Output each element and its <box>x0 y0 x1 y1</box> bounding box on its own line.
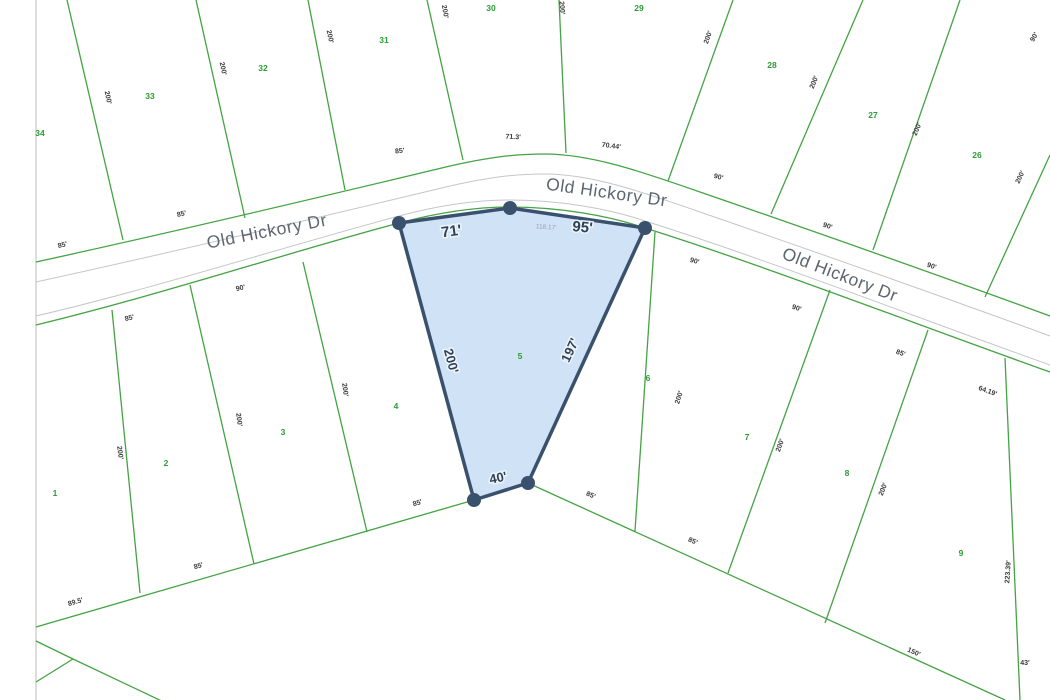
lot-number-label: 1 <box>53 488 58 498</box>
dimension-label: 71' <box>440 222 462 242</box>
lot-boundary <box>303 262 367 532</box>
dimension-label: 90' <box>235 284 246 293</box>
dimension-label: 200' <box>325 29 335 44</box>
dimension-label: 200' <box>703 30 714 45</box>
lot-number-label: 31 <box>379 35 389 45</box>
dimension-label: 118.17' <box>536 223 557 231</box>
dimension-label: 200' <box>775 438 786 453</box>
lot-boundary <box>1005 358 1020 700</box>
dimension-label: 85' <box>895 349 907 359</box>
dimension-label: 70.44' <box>601 142 621 151</box>
plat-map: Old Hickory Dr Old Hickory Dr Old Hickor… <box>0 0 1050 700</box>
dimension-label: 89.5' <box>67 597 84 608</box>
lot-boundary <box>67 0 123 240</box>
parcel-vertex-handle[interactable] <box>638 221 652 235</box>
dimension-label: 200' <box>912 122 924 137</box>
parcel-vertex-handle[interactable] <box>521 476 535 490</box>
dimension-label: 43' <box>1020 660 1030 667</box>
lot-rear-boundary <box>528 483 1005 700</box>
lot-number-label: 27 <box>868 110 878 120</box>
lot-number-label: 9 <box>959 548 964 558</box>
dimension-label: 64.19' <box>977 385 998 398</box>
lot-number-label: 32 <box>258 63 268 73</box>
parcel-vertex-handle[interactable] <box>467 493 481 507</box>
road-name-label: Old Hickory Dr <box>780 243 901 305</box>
lot-boundary <box>308 0 345 190</box>
dimension-label: 200' <box>674 390 685 405</box>
dimension-label: 90' <box>689 257 700 266</box>
dimension-label: 85' <box>193 562 204 571</box>
lot-number-label: 6 <box>646 373 651 383</box>
dimension-label: 85' <box>395 147 405 155</box>
dimension-label: 200' <box>557 1 565 15</box>
dimension-label: 200' <box>809 75 821 90</box>
dimension-label: 85' <box>687 537 699 547</box>
lot-boundary <box>427 0 463 160</box>
lot-number-label: 5 <box>518 351 523 361</box>
dimension-label: 200' <box>340 383 349 398</box>
dimension-label: 200' <box>115 446 124 461</box>
dimension-label: 90' <box>822 222 833 232</box>
lot-number-label: 2 <box>164 458 169 468</box>
lot-number-label: 7 <box>745 432 750 442</box>
dimension-label: 200' <box>878 482 890 497</box>
dimension-label: 223.39' <box>1004 560 1013 584</box>
lot-number-label: 29 <box>634 3 644 13</box>
dimension-label: 85' <box>57 241 68 250</box>
lot-number-label: 26 <box>972 150 982 160</box>
parcel-vertex-handle[interactable] <box>392 216 406 230</box>
dimension-label: 95' <box>572 218 594 237</box>
road-name-label: Old Hickory Dr <box>545 174 669 211</box>
lot-number-label: 28 <box>767 60 777 70</box>
dimension-label: 85' <box>585 491 597 501</box>
lot-number-label: 4 <box>394 401 399 411</box>
dimension-label: 200' <box>234 413 243 428</box>
lot-boundary <box>559 0 566 153</box>
lot-number-label: 30 <box>486 3 496 13</box>
dimension-label: 90' <box>713 173 724 182</box>
dimension-label: 71.3' <box>505 134 521 142</box>
lot-boundary <box>668 0 733 181</box>
lot-boundary <box>825 330 928 623</box>
lot-boundary <box>196 0 245 218</box>
dimension-label: 200' <box>103 90 113 105</box>
dimension-label: 200' <box>440 5 449 20</box>
dimension-label: 90' <box>1029 31 1040 43</box>
dimension-label: 85' <box>412 499 423 508</box>
dimension-label: 200' <box>1015 170 1027 185</box>
road-name-label: Old Hickory Dr <box>205 210 329 253</box>
lot-boundary <box>36 641 168 700</box>
lot-boundary <box>771 0 863 214</box>
lot-number-label: 34 <box>35 128 45 138</box>
dimension-label: 90' <box>926 262 938 272</box>
dimension-label: 85' <box>176 210 187 219</box>
dimension-label: 200' <box>218 61 228 76</box>
dimension-label: 150' <box>906 647 921 659</box>
lot-rear-boundary <box>36 500 474 627</box>
lot-number-label: 33 <box>145 91 155 101</box>
dimension-label: 85' <box>124 314 135 323</box>
lot-number-label: 8 <box>845 468 850 478</box>
lot-boundary <box>190 285 254 564</box>
lot-boundary <box>728 290 830 573</box>
dimension-label: 90' <box>791 304 802 314</box>
parcel-vertex-handle[interactable] <box>503 201 517 215</box>
lot-number-label: 3 <box>281 427 286 437</box>
